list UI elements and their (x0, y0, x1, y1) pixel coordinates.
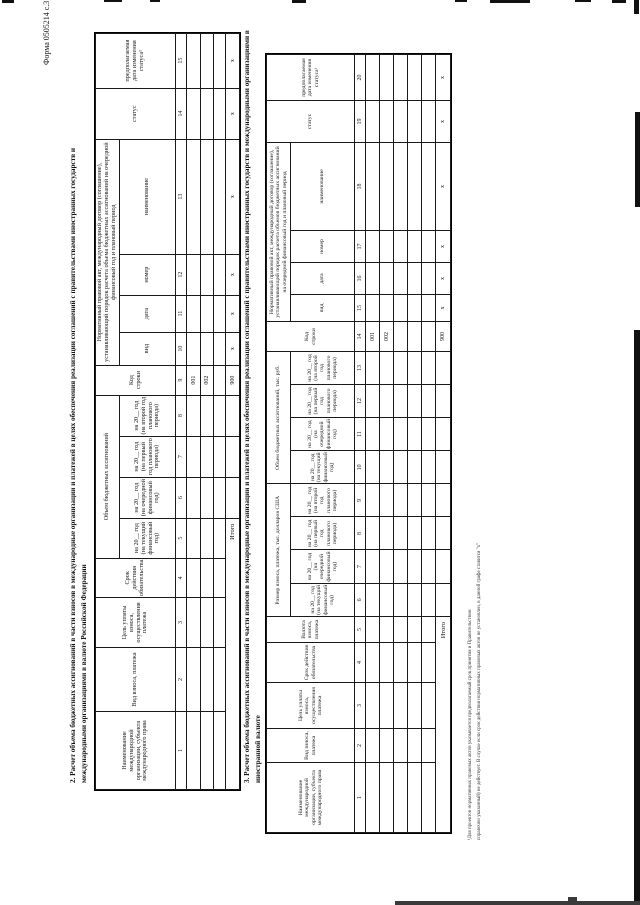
column-number-cell: 11 (355, 417, 366, 450)
data-cell (187, 88, 201, 139)
data-cell (187, 332, 201, 365)
data-cell (187, 712, 201, 790)
scan-artifact (150, 0, 160, 2)
data-cell (214, 477, 226, 518)
data-cell (366, 583, 380, 616)
total-cell (436, 517, 451, 550)
footnote-line1: ¹Для проектов нормативных правовых актов… (468, 609, 473, 840)
column-number-cell: 2 (176, 648, 187, 712)
data-cell (394, 763, 408, 833)
data-cell (408, 294, 422, 321)
column-header: на 20__ год (на второй год планового пер… (120, 395, 176, 436)
scan-artifact (568, 897, 577, 902)
column-header: Цель уплаты взноса, осуществления платеж… (96, 598, 176, 648)
column-number-cell: 8 (355, 517, 366, 550)
column-number-cell: 12 (355, 384, 366, 417)
data-cell (394, 294, 408, 321)
data-cell (422, 417, 436, 450)
scan-artifact (575, 0, 591, 2)
data-cell (394, 142, 408, 230)
data-cell (408, 617, 422, 643)
column-header: номер (291, 230, 355, 262)
data-cell (408, 230, 422, 262)
data-cell (394, 100, 408, 142)
data-cell (201, 598, 214, 648)
data-cell (201, 648, 214, 712)
row-code-cell (394, 321, 408, 351)
data-cell (214, 88, 226, 139)
data-cell (214, 332, 226, 365)
data-cell (380, 484, 394, 517)
data-cell (380, 683, 394, 729)
data-cell (380, 763, 394, 833)
data-cell (408, 351, 422, 384)
data-cell (214, 598, 226, 648)
column-header: статус (267, 100, 355, 142)
data-cell (214, 558, 226, 597)
data-cell (408, 583, 422, 616)
data-cell (422, 517, 436, 550)
data-cell (394, 729, 408, 763)
data-cell (366, 683, 380, 729)
data-cell (380, 729, 394, 763)
total-cell (436, 417, 451, 450)
data-cell (394, 351, 408, 384)
data-cell (422, 451, 436, 484)
data-cell (187, 598, 201, 648)
data-cell (366, 351, 380, 384)
column-number-cell: 9 (176, 365, 187, 395)
column-header: Наименование международной организации, … (96, 712, 176, 790)
total-cell: х (436, 142, 451, 230)
data-cell (366, 142, 380, 230)
column-group-header: Объем бюджетных ассигнований, тыс. руб. (267, 351, 291, 484)
data-cell (422, 100, 436, 142)
column-header: предполагаемая дата изменения статуса¹ (96, 33, 176, 88)
data-cell (422, 583, 436, 616)
column-number-cell: 18 (355, 142, 366, 230)
scan-artifact (455, 0, 467, 2)
data-cell (380, 550, 394, 583)
column-header: номер (120, 254, 176, 295)
data-cell (201, 139, 214, 254)
data-cell (394, 230, 408, 262)
data-cell (408, 417, 422, 450)
total-cell (226, 477, 240, 518)
total-cell: х (436, 262, 451, 294)
data-cell (408, 100, 422, 142)
column-number-cell: 4 (355, 643, 366, 683)
column-number-cell: 1 (355, 763, 366, 833)
rotated-landscape-page: Форма 0505214 с.3 2. Расчет объема бюдже… (0, 0, 640, 905)
data-cell (380, 294, 394, 321)
total-cell: х (436, 230, 451, 262)
data-cell (201, 436, 214, 477)
row-code-cell (422, 321, 436, 351)
row-code-cell (408, 321, 422, 351)
scan-artifact (2, 0, 14, 3)
data-cell (380, 617, 394, 643)
column-number-cell: 20 (355, 54, 366, 100)
data-cell (394, 417, 408, 450)
data-cell (380, 384, 394, 417)
column-number-cell: 19 (355, 100, 366, 142)
data-cell (201, 395, 214, 436)
column-header: наименование (120, 139, 176, 254)
row-code-cell: 001 (187, 365, 201, 395)
section2-heading-line1: 2. Расчет объема бюджетных ассигнований … (69, 148, 77, 783)
data-cell (366, 100, 380, 142)
data-cell (380, 262, 394, 294)
column-number-cell: 14 (176, 88, 187, 139)
table-row (422, 54, 436, 832)
data-cell (408, 384, 422, 417)
data-cell (187, 648, 201, 712)
total-cell: х (226, 33, 240, 88)
column-number-cell: 7 (355, 550, 366, 583)
data-cell (380, 517, 394, 550)
data-cell (214, 648, 226, 712)
column-group-header: Нормативный правовой акт, международный … (96, 139, 120, 365)
data-cell (422, 643, 436, 683)
data-cell (214, 436, 226, 477)
column-header: Валюта взноса, платежа (267, 617, 355, 643)
data-cell (366, 384, 380, 417)
data-cell (380, 142, 394, 230)
total-row: Итого900хххххх (436, 54, 451, 832)
column-header: Код строки (96, 365, 176, 395)
data-cell (366, 294, 380, 321)
total-cell: х (436, 100, 451, 142)
column-group-header: Нормативный правовой акт, международный … (267, 142, 291, 321)
data-cell (366, 484, 380, 517)
data-cell (408, 54, 422, 100)
data-cell (408, 643, 422, 683)
total-cell (436, 484, 451, 517)
data-cell (366, 729, 380, 763)
data-cell (201, 518, 214, 558)
total-cell: х (226, 139, 240, 254)
column-number-cell: 6 (176, 477, 187, 518)
data-cell (366, 550, 380, 583)
data-cell (408, 763, 422, 833)
column-number-cell: 17 (355, 230, 366, 262)
data-cell (366, 517, 380, 550)
data-cell (366, 230, 380, 262)
data-cell (422, 617, 436, 643)
column-header: вид (120, 332, 176, 365)
table-row: 001 (187, 33, 201, 789)
data-cell (201, 712, 214, 790)
data-cell (394, 617, 408, 643)
data-cell (422, 142, 436, 230)
column-header: дата (120, 295, 176, 332)
column-header: на 20__ год (на первый год планового пер… (120, 436, 176, 477)
column-number-cell: 12 (176, 254, 187, 295)
data-cell (408, 142, 422, 230)
column-number-cell: 6 (355, 583, 366, 616)
data-cell (408, 262, 422, 294)
data-cell (408, 517, 422, 550)
column-number-cell: 3 (355, 683, 366, 729)
total-row: Итого900хххххх (226, 33, 240, 789)
section3-table: Наименование международной организации, … (266, 54, 451, 833)
row-code-cell: 002 (380, 321, 394, 351)
data-cell (394, 451, 408, 484)
column-number-cell: 15 (176, 33, 187, 88)
section2-table-grid: Наименование международной организации, … (95, 33, 240, 790)
data-cell (214, 33, 226, 88)
column-number-cell: 10 (355, 451, 366, 484)
total-cell: 900 (226, 365, 240, 395)
table-row (214, 33, 226, 789)
column-number-cell: 16 (355, 262, 366, 294)
data-cell (366, 262, 380, 294)
data-cell (422, 351, 436, 384)
column-number-cell: 15 (355, 294, 366, 321)
section3-table-grid: Наименование международной организации, … (266, 54, 451, 833)
column-header: на 20__ год (на первый год планового пер… (291, 517, 355, 550)
scan-artifact (634, 330, 640, 905)
data-cell (408, 729, 422, 763)
column-number-cell: 10 (176, 332, 187, 365)
data-cell (380, 417, 394, 450)
data-cell (187, 477, 201, 518)
column-number-cell: 8 (176, 395, 187, 436)
total-label: Итого (436, 617, 451, 833)
data-cell (394, 54, 408, 100)
data-cell (201, 254, 214, 295)
column-header: на 20__ год (на первый год планового пер… (291, 384, 355, 417)
data-cell (366, 643, 380, 683)
data-cell (214, 712, 226, 790)
data-cell (366, 417, 380, 450)
column-number-cell: 7 (176, 436, 187, 477)
data-cell (187, 395, 201, 436)
data-cell (408, 683, 422, 729)
scan-artifact (635, 112, 640, 207)
total-cell (226, 395, 240, 436)
table-row (394, 54, 408, 832)
data-cell (214, 139, 226, 254)
total-cell: х (436, 54, 451, 100)
column-header: Код строки (267, 321, 355, 351)
data-cell (394, 683, 408, 729)
data-cell (422, 54, 436, 100)
column-header: на 20__ год (на второй год планового пер… (291, 484, 355, 517)
data-cell (187, 558, 201, 597)
table-row: 002 (201, 33, 214, 789)
column-group-header: Объем бюджетных ассигнований (96, 395, 120, 558)
column-header: Срок действия обязательства (96, 558, 176, 597)
scan-artifact (490, 0, 530, 3)
total-cell (436, 384, 451, 417)
data-cell (394, 384, 408, 417)
column-number-cell: 2 (355, 729, 366, 763)
data-cell (214, 395, 226, 436)
data-cell (394, 583, 408, 616)
total-cell: х (226, 295, 240, 332)
total-cell (226, 436, 240, 477)
footnote-line2: справочно указанный) не действует. В слу… (477, 543, 482, 840)
column-header: на 20__ год (на текущий финансовый год) (291, 583, 355, 616)
data-cell (187, 518, 201, 558)
column-header: статус (96, 88, 176, 139)
data-cell (187, 295, 201, 332)
data-cell (366, 451, 380, 484)
total-cell: х (226, 88, 240, 139)
total-cell (436, 550, 451, 583)
total-cell (436, 351, 451, 384)
data-cell (380, 643, 394, 683)
column-header: вид (291, 294, 355, 321)
table-row: 002 (380, 54, 394, 832)
total-cell: х (226, 332, 240, 365)
data-cell (201, 332, 214, 365)
total-cell: 900 (436, 321, 451, 351)
section3-heading-line1: 3. Расчет объема бюджетных ассигнований … (243, 30, 251, 783)
scan-artifact (104, 0, 122, 2)
scan-artifact (634, 0, 639, 14)
column-header: Срок действия обязательства (267, 643, 355, 683)
data-cell (380, 100, 394, 142)
form-number-label: Форма 0505214 с.3 (42, 1, 51, 65)
column-number-cell: 14 (355, 321, 366, 351)
section3-heading-line2: иностранной валюте (254, 715, 262, 783)
column-header: Вид взноса, платежа (96, 648, 176, 712)
data-cell (214, 254, 226, 295)
column-number-cell: 9 (355, 484, 366, 517)
column-number-cell: 4 (176, 558, 187, 597)
row-code-cell: 002 (201, 365, 214, 395)
total-cell: х (436, 294, 451, 321)
data-cell (394, 484, 408, 517)
data-cell (422, 384, 436, 417)
table-row (408, 54, 422, 832)
column-header: Цель уплаты взноса, осуществления платеж… (267, 683, 355, 729)
total-cell (436, 451, 451, 484)
scanned-form-page: { "page": { "form_label": "Форма 0505214… (0, 0, 640, 905)
data-cell (422, 550, 436, 583)
data-cell (422, 262, 436, 294)
column-header: дата (291, 262, 355, 294)
column-header: на 20__ год (на текущий финансовый год) (291, 451, 355, 484)
data-cell (394, 643, 408, 683)
column-header: Вид взноса, платежа (267, 729, 355, 763)
data-cell (187, 436, 201, 477)
column-header: на 20__ год (на очередной финансовый год… (291, 417, 355, 450)
data-cell (394, 262, 408, 294)
total-label: Итого (226, 518, 240, 789)
data-cell (380, 583, 394, 616)
column-header: на 20__ год (на очередной финансовый год… (291, 550, 355, 583)
column-number-cell: 5 (355, 617, 366, 643)
column-number-cell: 11 (176, 295, 187, 332)
column-group-header: Размер взноса, платежа, тыс. долларов СШ… (267, 484, 291, 617)
column-header: на 20__ год (на очередной финансовый год… (120, 477, 176, 518)
data-cell (422, 294, 436, 321)
data-cell (201, 477, 214, 518)
data-cell (380, 351, 394, 384)
table-row: 001 (366, 54, 380, 832)
data-cell (201, 558, 214, 597)
scan-artifact (395, 901, 640, 905)
data-cell (201, 33, 214, 88)
section2-table: Наименование международной организации, … (95, 33, 240, 790)
data-cell (380, 451, 394, 484)
data-cell (187, 33, 201, 88)
section2-heading-line2: международными организациями в валюте Ро… (80, 564, 88, 783)
data-cell (408, 550, 422, 583)
column-number-cell: 3 (176, 598, 187, 648)
total-cell: х (226, 254, 240, 295)
data-cell (201, 295, 214, 332)
data-cell (366, 763, 380, 833)
data-cell (422, 484, 436, 517)
data-cell (187, 254, 201, 295)
data-cell (408, 484, 422, 517)
data-cell (366, 617, 380, 643)
total-cell (436, 583, 451, 616)
column-number-cell: 13 (355, 351, 366, 384)
column-header: Наименование международной организации, … (267, 763, 355, 833)
column-header: на 20__ год (на текущий финансовый год) (120, 518, 176, 558)
data-cell (408, 451, 422, 484)
data-cell (214, 518, 226, 558)
data-cell (380, 230, 394, 262)
data-cell (422, 763, 436, 833)
row-code-cell: 001 (366, 321, 380, 351)
column-header: наименование (291, 142, 355, 230)
column-number-cell: 5 (176, 518, 187, 558)
data-cell (187, 139, 201, 254)
row-code-cell (214, 365, 226, 395)
data-cell (394, 517, 408, 550)
column-number-cell: 13 (176, 139, 187, 254)
data-cell (422, 230, 436, 262)
data-cell (394, 550, 408, 583)
data-cell (201, 88, 214, 139)
column-header: на 20__ год (на второй год планового пер… (291, 351, 355, 384)
data-cell (366, 54, 380, 100)
data-cell (422, 683, 436, 729)
scan-artifact (292, 0, 306, 3)
data-cell (380, 54, 394, 100)
column-header: предполагаемая дата изменения статуса¹ (267, 54, 355, 100)
scan-artifact (612, 0, 626, 3)
data-cell (422, 729, 436, 763)
data-cell (214, 295, 226, 332)
column-number-cell: 1 (176, 712, 187, 790)
